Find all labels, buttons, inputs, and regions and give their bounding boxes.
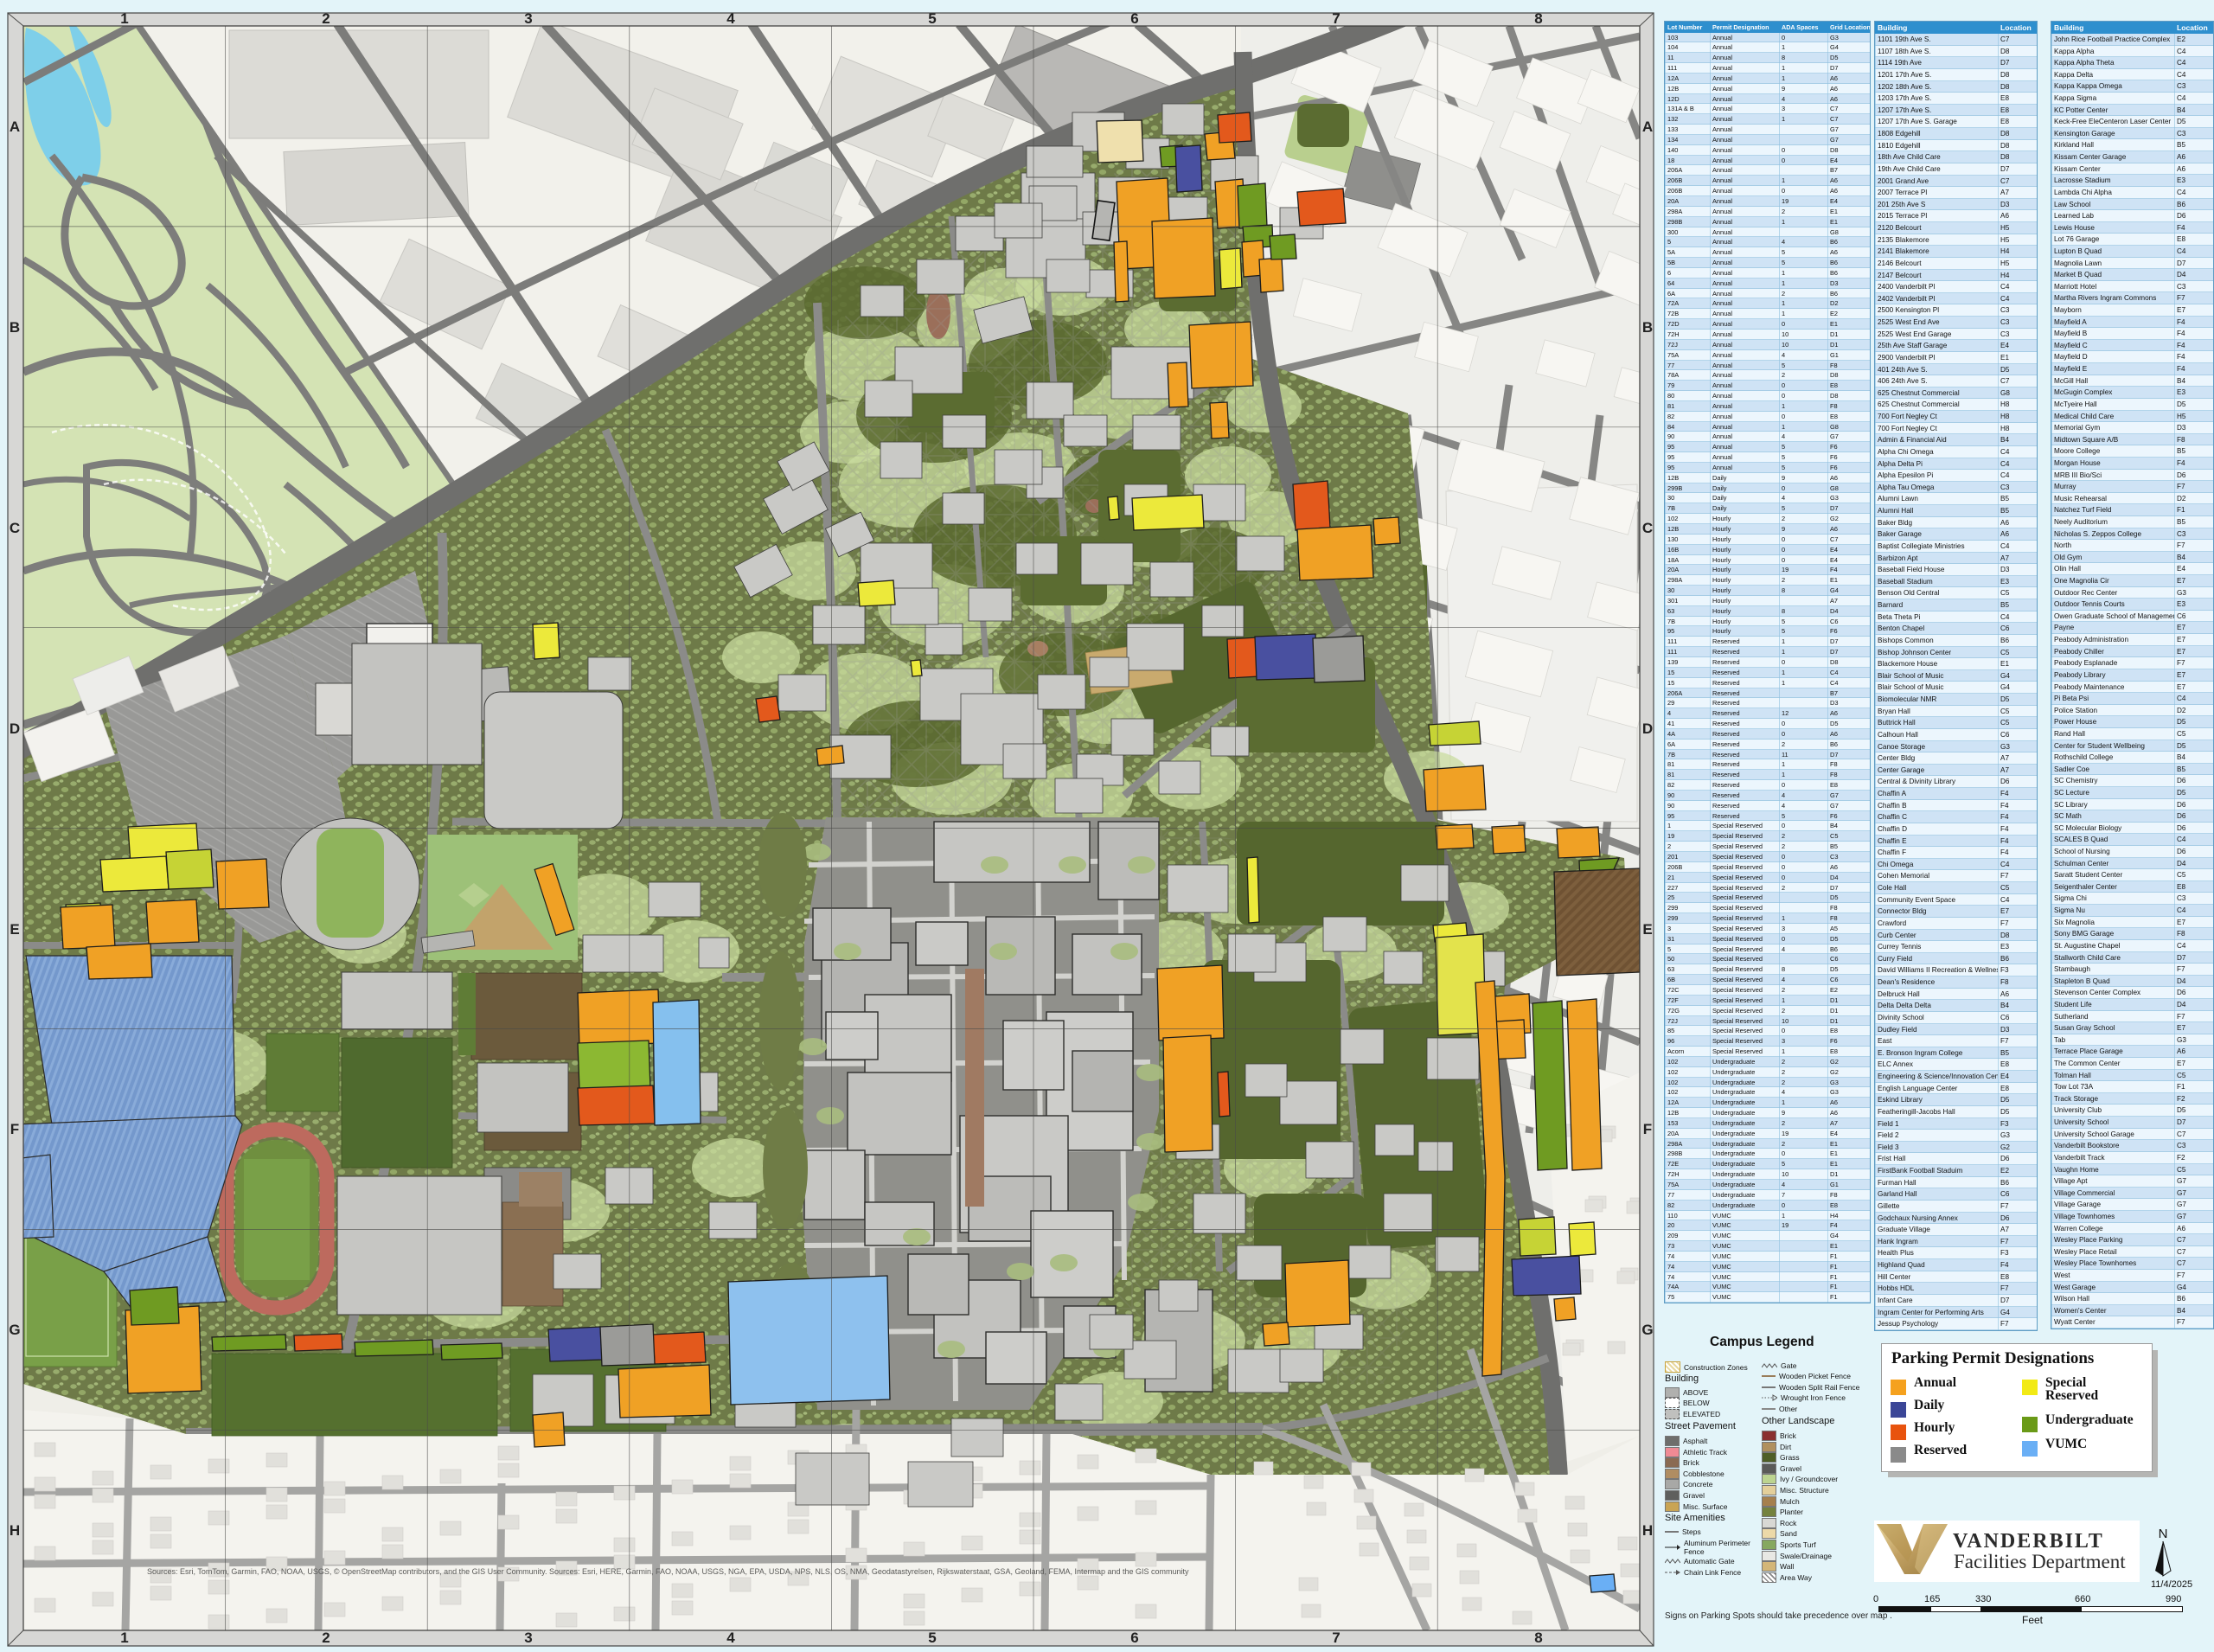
svg-text:D: D — [10, 720, 20, 737]
svg-text:F: F — [1643, 1121, 1652, 1137]
svg-text:5: 5 — [928, 1630, 936, 1646]
svg-text:8: 8 — [1534, 10, 1542, 27]
svg-text:2: 2 — [322, 10, 330, 27]
svg-text:3: 3 — [524, 10, 532, 27]
svg-text:E: E — [10, 921, 19, 938]
svg-text:C: C — [10, 520, 20, 536]
svg-text:4: 4 — [726, 1630, 735, 1646]
svg-text:2: 2 — [322, 1630, 330, 1646]
svg-text:3: 3 — [524, 1630, 532, 1646]
svg-text:F: F — [10, 1121, 19, 1137]
svg-text:6: 6 — [1130, 10, 1138, 27]
svg-text:B: B — [1642, 319, 1653, 336]
svg-text:4: 4 — [726, 10, 735, 27]
svg-text:8: 8 — [1534, 1630, 1542, 1646]
svg-text:B: B — [10, 319, 20, 336]
svg-text:C: C — [1642, 520, 1653, 536]
svg-text:1: 1 — [120, 1630, 128, 1646]
svg-text:H: H — [10, 1522, 20, 1539]
svg-text:7: 7 — [1332, 10, 1340, 27]
svg-text:G: G — [9, 1322, 20, 1338]
svg-text:7: 7 — [1332, 1630, 1340, 1646]
svg-text:H: H — [1642, 1522, 1653, 1539]
svg-text:N: N — [2159, 1527, 2168, 1541]
svg-text:E: E — [1642, 921, 1652, 938]
svg-text:6: 6 — [1130, 1630, 1138, 1646]
svg-text:Sources: Esri, TomTom, Garmin,: Sources: Esri, TomTom, Garmin, FAO, NOAA… — [147, 1567, 1189, 1576]
svg-text:A: A — [10, 118, 20, 135]
svg-text:G: G — [1641, 1322, 1653, 1338]
svg-text:1: 1 — [120, 10, 128, 27]
svg-text:D: D — [1642, 720, 1653, 737]
svg-text:A: A — [1642, 118, 1653, 135]
svg-text:5: 5 — [928, 10, 936, 27]
